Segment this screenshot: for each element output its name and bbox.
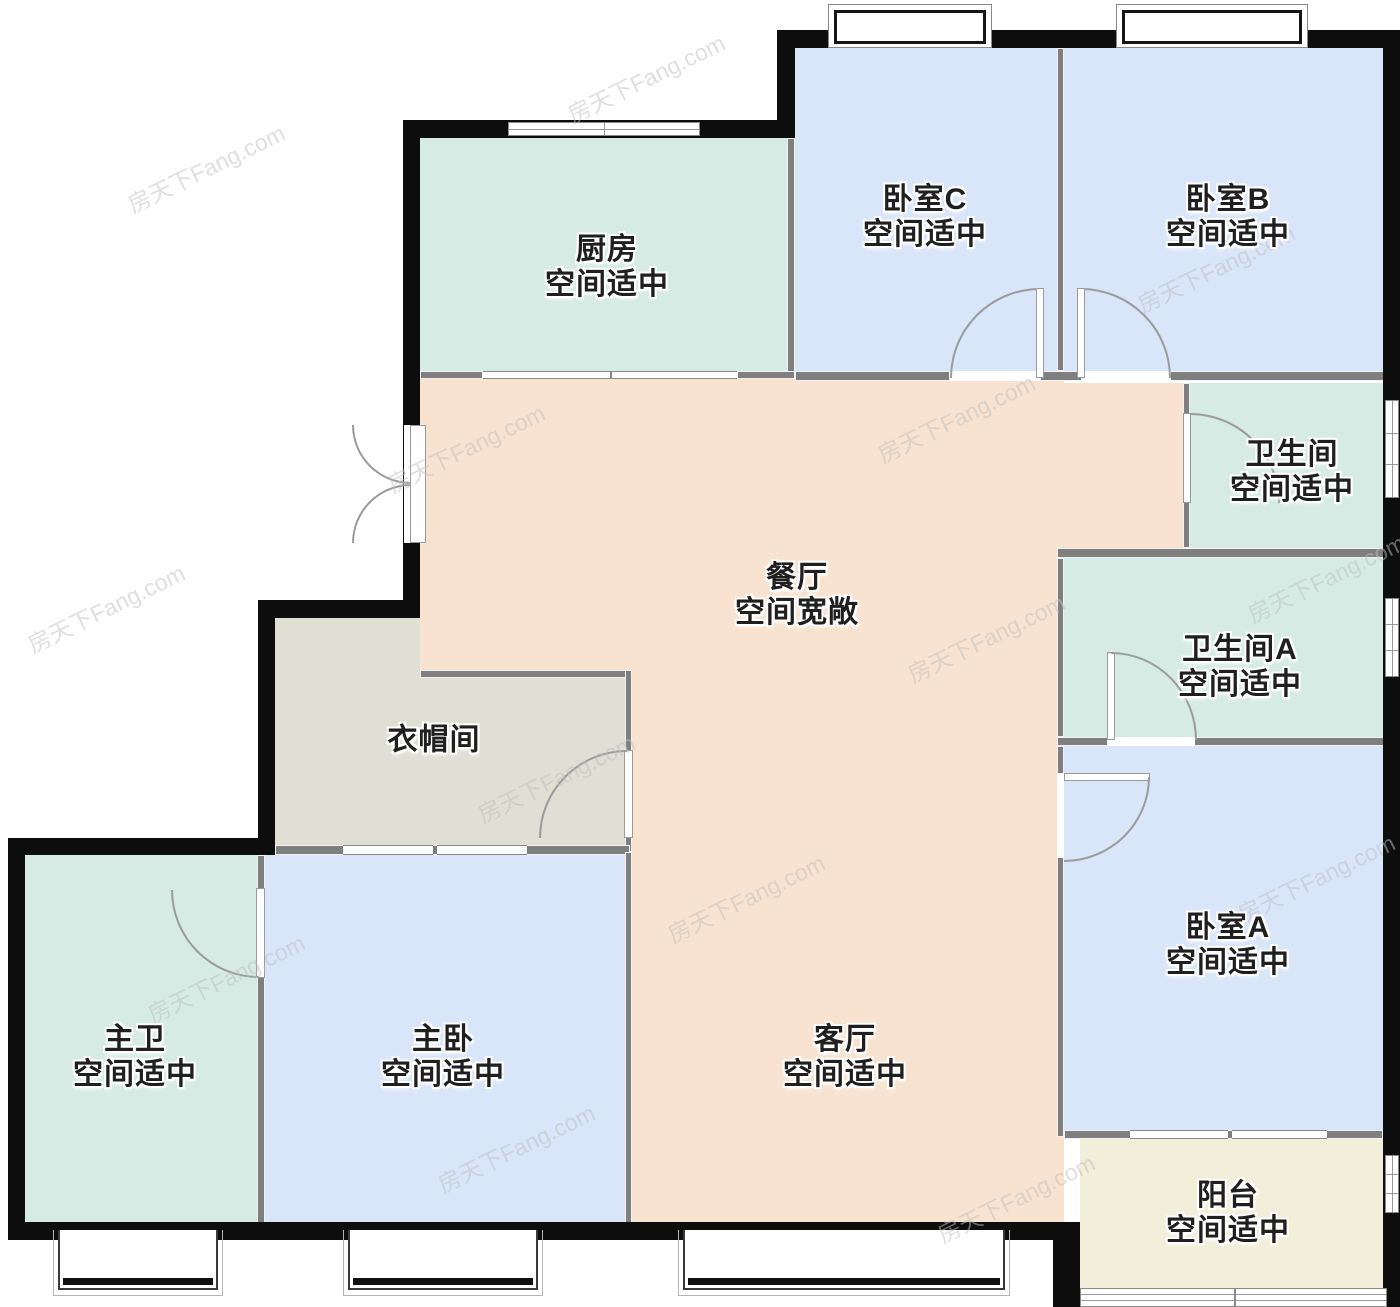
room-name: 衣帽间 (388, 723, 481, 758)
room-label-bathroom: 卫生间 空间适中 (1230, 437, 1354, 507)
watermark: 房天下Fang.com (21, 554, 190, 660)
wall-interior (1170, 371, 1395, 381)
hallway-floor (1064, 383, 1183, 551)
master-bedroom-sliding-door (437, 845, 527, 855)
bedroom-b-door-leaf (1077, 288, 1085, 378)
window-balcony-side (1385, 1155, 1399, 1213)
room-note: 空间适中 (863, 217, 987, 252)
wall-exterior (8, 838, 25, 1240)
room-name: 厨房 (545, 232, 669, 267)
watermark: 房天下Fang.com (561, 24, 730, 130)
room-name: 客厅 (783, 1022, 907, 1057)
wall-interior (420, 371, 483, 379)
room-name: 阳台 (1166, 1178, 1290, 1213)
wall-exterior (258, 600, 275, 855)
room-label-bathroom-a: 卫生间A 空间适中 (1178, 632, 1302, 702)
wall-exterior (258, 600, 420, 618)
room-note: 空间适中 (1166, 945, 1290, 980)
room-label-bedroom-b: 卧室B 空间适中 (1166, 182, 1290, 252)
wall-interior (787, 138, 795, 378)
bedroom-a-door-opening (1057, 773, 1064, 858)
bedroom-c-door-leaf (1036, 288, 1044, 378)
window-bathroom-a (1385, 598, 1399, 677)
wall-exterior (403, 120, 420, 618)
room-note: 空间适中 (1166, 217, 1290, 252)
wall-interior (1057, 48, 1064, 371)
room-label-cloakroom: 衣帽间 (388, 723, 481, 758)
wall-interior (737, 371, 795, 379)
wall-interior (625, 852, 632, 1232)
room-note: 空间适中 (1230, 472, 1354, 507)
wall-exterior (1053, 1222, 1080, 1307)
room-label-bedroom-a: 卧室A 空间适中 (1166, 910, 1290, 980)
balcony-railing (1080, 1288, 1387, 1307)
room-name: 主卧 (381, 1022, 505, 1057)
wall-interior (1057, 548, 1397, 558)
bay-window-master-bath (58, 1230, 218, 1290)
room-note: 空间适中 (1178, 667, 1302, 702)
room-label-kitchen: 厨房 空间适中 (545, 232, 669, 302)
room-label-master-bedroom: 主卧 空间适中 (381, 1022, 505, 1092)
room-name: 卧室A (1166, 910, 1290, 945)
room-note: 空间适中 (381, 1057, 505, 1092)
room-label-master-bath: 主卫 空间适中 (73, 1022, 197, 1092)
room-note: 空间适中 (73, 1057, 197, 1092)
wall-interior (420, 670, 630, 678)
wall-interior (795, 371, 950, 381)
floor-plan: 房天下Fang.com 房天下Fang.com 房天下Fang.com 房天下F… (0, 0, 1400, 1307)
room-label-balcony: 阳台 空间适中 (1166, 1178, 1290, 1248)
room-note: 空间适中 (1166, 1213, 1290, 1248)
watermark: 房天下Fang.com (121, 114, 290, 220)
master-bedroom-sliding-door (343, 845, 433, 855)
bay-window-living-room (683, 1230, 1005, 1290)
window-bedroom-c (828, 4, 992, 48)
room-name: 卧室B (1166, 182, 1290, 217)
room-name: 卧室C (863, 182, 987, 217)
balcony-sliding-door (1130, 1130, 1228, 1139)
bay-window-master-bedroom (348, 1230, 538, 1290)
living-floor (630, 673, 1064, 1232)
window-bedroom-b (1116, 4, 1308, 48)
room-note: 空间适中 (545, 267, 669, 302)
room-note: 空间适中 (783, 1057, 907, 1092)
room-name: 餐厅 (735, 560, 859, 595)
room-name: 卫生间 (1230, 437, 1354, 472)
wall-exterior (8, 838, 275, 855)
entrance-door-arc (352, 425, 411, 484)
wall-interior (1040, 371, 1082, 381)
balcony-sliding-door (1232, 1130, 1327, 1139)
window-kitchen (508, 122, 700, 136)
window-bathroom (1385, 400, 1399, 498)
room-name: 卫生间A (1178, 632, 1302, 667)
room-label-dining: 餐厅 空间宽敞 (735, 560, 859, 630)
entrance-door-leaf (410, 425, 426, 543)
wall-interior (1057, 558, 1064, 737)
kitchen-sliding-door (483, 371, 737, 379)
cloakroom-floor (275, 618, 420, 673)
room-label-living: 客厅 空间适中 (783, 1022, 907, 1092)
entrance-door-arc (352, 484, 411, 543)
room-note: 空间宽敞 (735, 595, 859, 630)
room-name: 主卫 (73, 1022, 197, 1057)
room-label-bedroom-c: 卧室C 空间适中 (863, 182, 987, 252)
